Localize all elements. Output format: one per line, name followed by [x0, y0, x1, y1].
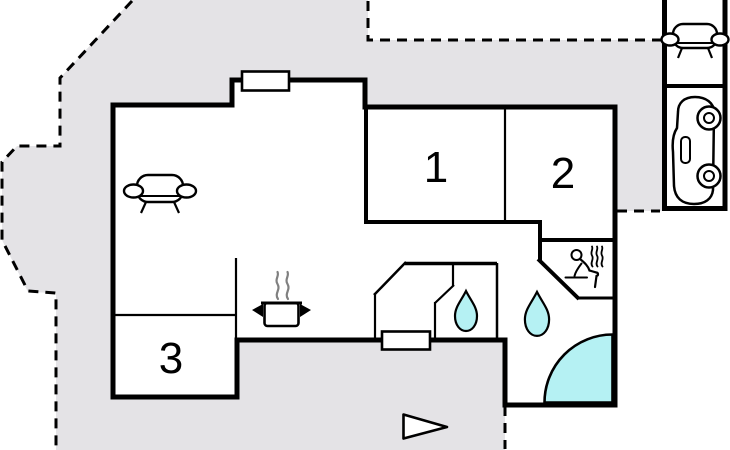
bedroom-1-label: 1 — [424, 143, 448, 192]
annex-building — [662, 0, 729, 209]
floor-plan-page: 1 2 3 — [0, 0, 730, 450]
floor-plan-svg: 1 2 3 — [0, 0, 730, 450]
bedroom-2-label: 2 — [551, 149, 575, 198]
car-icon — [673, 97, 721, 204]
room-3-label: 3 — [159, 334, 183, 383]
window-bottom — [382, 332, 430, 350]
window-top — [242, 72, 289, 91]
